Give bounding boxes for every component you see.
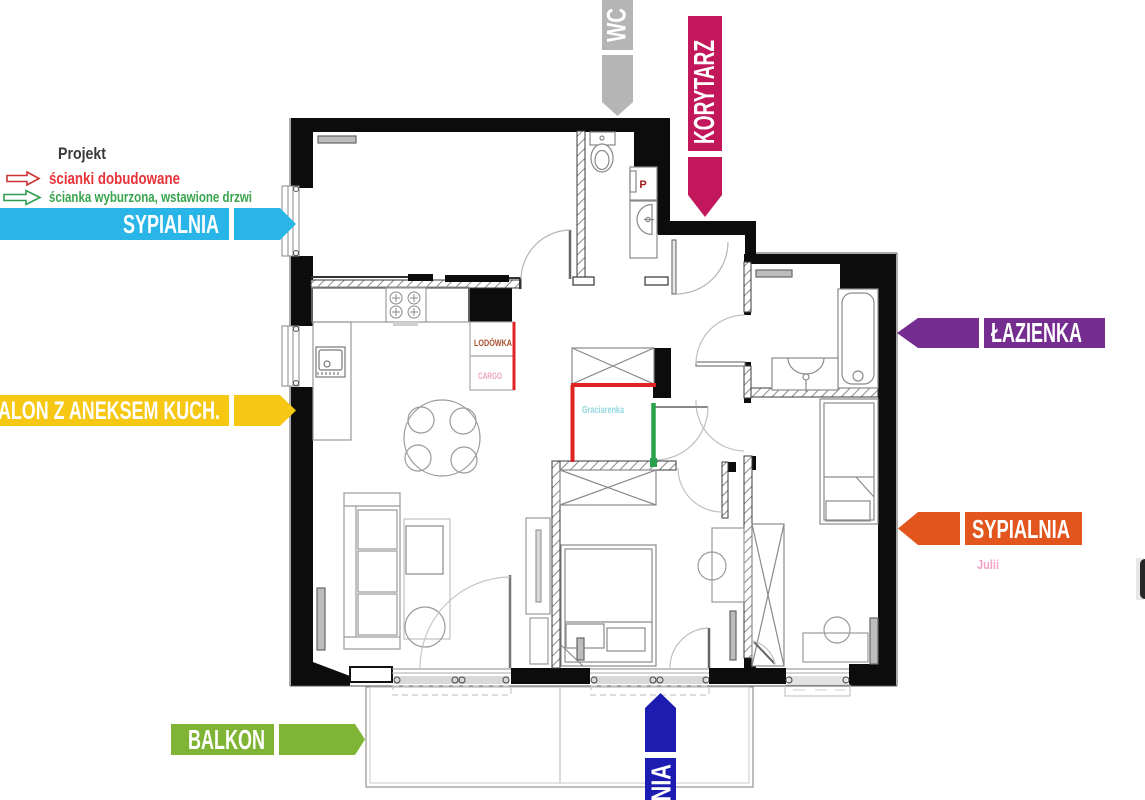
svg-text:P: P: [639, 179, 646, 191]
svg-text:SYPIALNIA: SYPIALNIA: [646, 764, 677, 800]
svg-text:ścianka wyburzona, wstawione d: ścianka wyburzona, wstawione drzwi: [49, 189, 252, 206]
svg-text:Graciarenka: Graciarenka: [582, 405, 624, 416]
svg-text:KORYTARZ: KORYTARZ: [689, 40, 721, 144]
svg-text:SYPIALNIA: SYPIALNIA: [123, 209, 219, 239]
svg-text:CARGO: CARGO: [478, 371, 502, 382]
svg-text:ścianki dobudowane: ścianki dobudowane: [49, 169, 180, 188]
svg-text:ŁAZIENKA: ŁAZIENKA: [991, 317, 1082, 348]
svg-text:Projekt: Projekt: [58, 145, 106, 163]
svg-text:Julii: Julii: [977, 557, 999, 572]
svg-text:LODÓWKA: LODÓWKA: [474, 337, 512, 349]
svg-text:WC: WC: [602, 8, 632, 42]
svg-text:SYPIALNIA: SYPIALNIA: [972, 514, 1070, 544]
svg-text:BALKON: BALKON: [188, 724, 265, 755]
svg-text:SALON Z ANEKSEM KUCH.: SALON Z ANEKSEM KUCH.: [0, 397, 220, 425]
